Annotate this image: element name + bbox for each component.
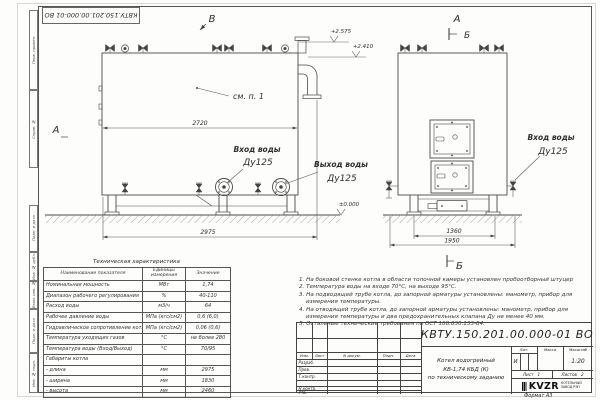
spec-cell: МПа (кгс/см2) <box>143 323 186 334</box>
spec-cell: 0,06 (0,6) <box>186 323 231 334</box>
table-row: Номинальная мощностьМВт1,74 <box>44 281 231 292</box>
col-izm: Изм. <box>297 352 312 359</box>
section-label-b-bottom: Б <box>456 261 463 272</box>
inlet-flange-icon <box>216 179 233 196</box>
ground-hatch-front <box>383 215 522 223</box>
col-ndocum: N докум. <box>327 352 377 359</box>
outlet-flange-icon <box>273 179 290 196</box>
role-prov: Пров. <box>297 366 329 373</box>
logo-subtitle: КОТЕЛЬНЫЙ ЗАВОД РЭП <box>561 382 582 389</box>
table-row: - ширинамм1830 <box>44 376 231 387</box>
note-4: 4. На отводящей трубе котла, до запорной… <box>299 307 592 322</box>
logo-sub-line2: ЗАВОД РЭП <box>561 386 582 390</box>
sheets-number: 2 <box>581 372 584 377</box>
safety-valve-icons-front <box>401 45 504 54</box>
logo-text: KVZR <box>529 381 559 392</box>
view-label-b: В <box>209 14 216 25</box>
spec-cell: Гидравлическое сопротивление котла <box>44 323 143 334</box>
spec-cell: 2975 <box>186 365 231 376</box>
spec-cell: - ширина <box>44 376 143 387</box>
dim-1360: 1360 <box>446 228 461 235</box>
table-row: Температура воды (Вход/Выход)°С70/95 <box>44 344 231 355</box>
spec-cell: Температура уходящих газов <box>44 333 143 344</box>
spec-cell: 40-110 <box>186 291 231 302</box>
spec-cell: 1,74 <box>186 281 231 292</box>
sheet-number: 1 <box>537 372 540 377</box>
lit-value: И <box>511 353 520 370</box>
spec-col-value: Значение <box>186 268 231 281</box>
spec-table: Наименование показателя Единицы измерени… <box>43 267 231 398</box>
spec-cell: мм <box>143 386 186 397</box>
spec-cell: мм <box>143 376 186 387</box>
sheet-label: Лист <box>523 372 534 377</box>
ground-hatch-side <box>45 215 340 223</box>
view-arrow-b <box>200 24 206 30</box>
inlet-dn-label: Ду125 <box>242 158 273 168</box>
table-row: - длинамм2975 <box>44 365 231 376</box>
title-block: Изм. Лист N докум. Подп. Дата Разраб. Пр… <box>296 322 592 393</box>
scale-header: Масштаб <box>563 346 593 353</box>
inlet-leader <box>227 169 243 183</box>
doc-number: КВТУ.150.201.00.000-01 ВО <box>421 323 593 346</box>
col-data: Дата <box>400 352 421 359</box>
see-note-label: см. п. 1 <box>233 92 264 101</box>
product-line-1: Котел водогрейный <box>437 357 495 366</box>
table-row: Температура уходящих газов°Сне более 280 <box>44 333 231 344</box>
dim-1950: 1950 <box>444 238 459 245</box>
technical-notes: 1. На боковой стенке котла в области топ… <box>299 277 592 329</box>
dim-2975: 2975 <box>200 229 215 236</box>
spec-cell: Температура воды (Вход/Выход) <box>44 344 143 355</box>
spec-cell: не более 280 <box>186 333 231 344</box>
side-view <box>99 37 321 215</box>
spec-cell: 0,6 (6,0) <box>186 312 231 323</box>
section-mark-bottom <box>447 255 454 267</box>
callout-leader <box>197 88 229 96</box>
product-line-3: по техническому заданию <box>428 374 505 383</box>
sheets-cell: Листов 2 <box>552 370 593 378</box>
table-row: Габариты котла <box>44 355 231 366</box>
spec-cell: Расход воды <box>44 302 143 313</box>
spec-cell: 64 <box>186 302 231 313</box>
table-row: Рабочее давление водыМПа (кгс/см2)0,6 (6… <box>44 312 231 323</box>
section-mark-top <box>449 28 457 40</box>
role-razrab: Разраб. <box>297 359 329 366</box>
table-row: Диапазон рабочего регулирования%40-110 <box>44 291 231 302</box>
spec-cell <box>143 355 186 366</box>
inlet-label: Вход воды <box>233 145 280 154</box>
spec-cell: 70/95 <box>186 344 231 355</box>
elevation-top: +2.575 <box>331 29 352 35</box>
drain-valve-icons <box>122 183 261 195</box>
margin-label-vzam-inv: Взам. инв. № <box>29 281 38 309</box>
lit-header: Лит. <box>511 346 537 353</box>
elevation-flue: +2.410 <box>353 44 374 50</box>
note-3: 3. На подводящей трубе котла, до запорно… <box>299 292 592 307</box>
spec-cell: МВт <box>143 281 186 292</box>
table-row: Гидравлическое сопротивление котлаМПа (к… <box>44 323 231 334</box>
spec-cell: °С <box>143 333 186 344</box>
margin-label-podp-data-2: Подп. и дата <box>29 309 38 353</box>
logo-bars-icon <box>522 382 527 391</box>
top-stamp-doc-number: КВТУ.150.201.00.000-01 ВО <box>42 7 140 24</box>
table-row: - высотамм2460 <box>44 386 231 397</box>
elevation-zero: ±0.000 <box>339 202 360 208</box>
margin-label-sprav-no: Справ. № <box>29 90 38 168</box>
note-1: 1. На боковой стенке котла в области топ… <box>299 277 592 284</box>
spec-cell: °С <box>143 344 186 355</box>
outlet-leader <box>285 172 318 184</box>
table-row: Расход водым3/ч64 <box>44 302 231 313</box>
view-label-a-front: А <box>453 14 461 25</box>
note-2: 2. Температура воды на входе 70°С, на вы… <box>299 284 592 291</box>
drawing-sheet: 2720 2975 +2.575 +2.410 ±0.000 В А см. п… <box>0 0 600 400</box>
spec-cell: Рабочее давление воды <box>44 312 143 323</box>
door-bolts <box>436 122 468 207</box>
spec-cell: МПа (кгс/см2) <box>143 312 186 323</box>
spec-cell: % <box>143 291 186 302</box>
mass-header: Масса <box>537 346 563 353</box>
format-label: Формат А3 <box>524 393 552 399</box>
role-tkontr: Т.контр. <box>297 373 329 380</box>
margin-label-podp-data-1: Подп. и дата <box>29 205 38 252</box>
scale-value: 1:20 <box>563 353 593 370</box>
outlet-dn-label: Ду125 <box>326 174 357 184</box>
margin-label-inv-dubl: Инв. № дубл. <box>29 252 38 281</box>
view-label-a-side: А <box>52 125 60 136</box>
spec-cell: мм <box>143 365 186 376</box>
spec-cell: - длина <box>44 365 143 376</box>
inlet2-dn-label: Ду125 <box>537 147 568 157</box>
sheet-cell: Лист 1 <box>511 370 552 378</box>
spec-cell: 1830 <box>186 376 231 387</box>
col-podp: Подп. <box>377 352 400 359</box>
inlet2-label: Вход воды <box>527 133 574 142</box>
spec-cell: - высота <box>44 386 143 397</box>
spec-table-title: Техническая характеристика <box>43 259 230 265</box>
margin-label-perv-primen: Перв. примен. <box>29 10 38 90</box>
spec-col-name: Наименование показателя <box>44 268 143 281</box>
spec-cell: м3/ч <box>143 302 186 313</box>
safety-valve-icons-side <box>106 45 272 54</box>
inlet2-leader <box>515 156 540 180</box>
section-label-b-top: Б <box>464 31 470 41</box>
outlet-label: Выход воды <box>314 160 368 169</box>
sheets-label: Листов <box>561 372 577 377</box>
company-logo: KVZR КОТЕЛЬНЫЙ ЗАВОД РЭП <box>511 378 593 394</box>
spec-cell <box>186 355 231 366</box>
spec-cell: Габариты котла <box>44 355 143 366</box>
elevation-marks <box>299 36 366 215</box>
margin-label-inv-podl: Инв. № подл. <box>29 353 38 393</box>
spec-col-units: Единицы измерения <box>143 268 186 281</box>
spec-cell: Диапазон рабочего регулирования <box>44 291 143 302</box>
spec-cell: Номинальная мощность <box>44 281 143 292</box>
col-list: Лист <box>312 352 327 359</box>
role-utv: Утв. <box>297 390 329 394</box>
spec-cell: 2460 <box>186 386 231 397</box>
product-line-2: КВ-1,74 КБД (К) <box>443 366 489 375</box>
spec-table-block: Техническая характеристика Наименование … <box>43 259 230 398</box>
dim-2720: 2720 <box>192 120 207 127</box>
product-name: Котел водогрейный КВ-1,74 КБД (К) по тех… <box>421 346 511 394</box>
